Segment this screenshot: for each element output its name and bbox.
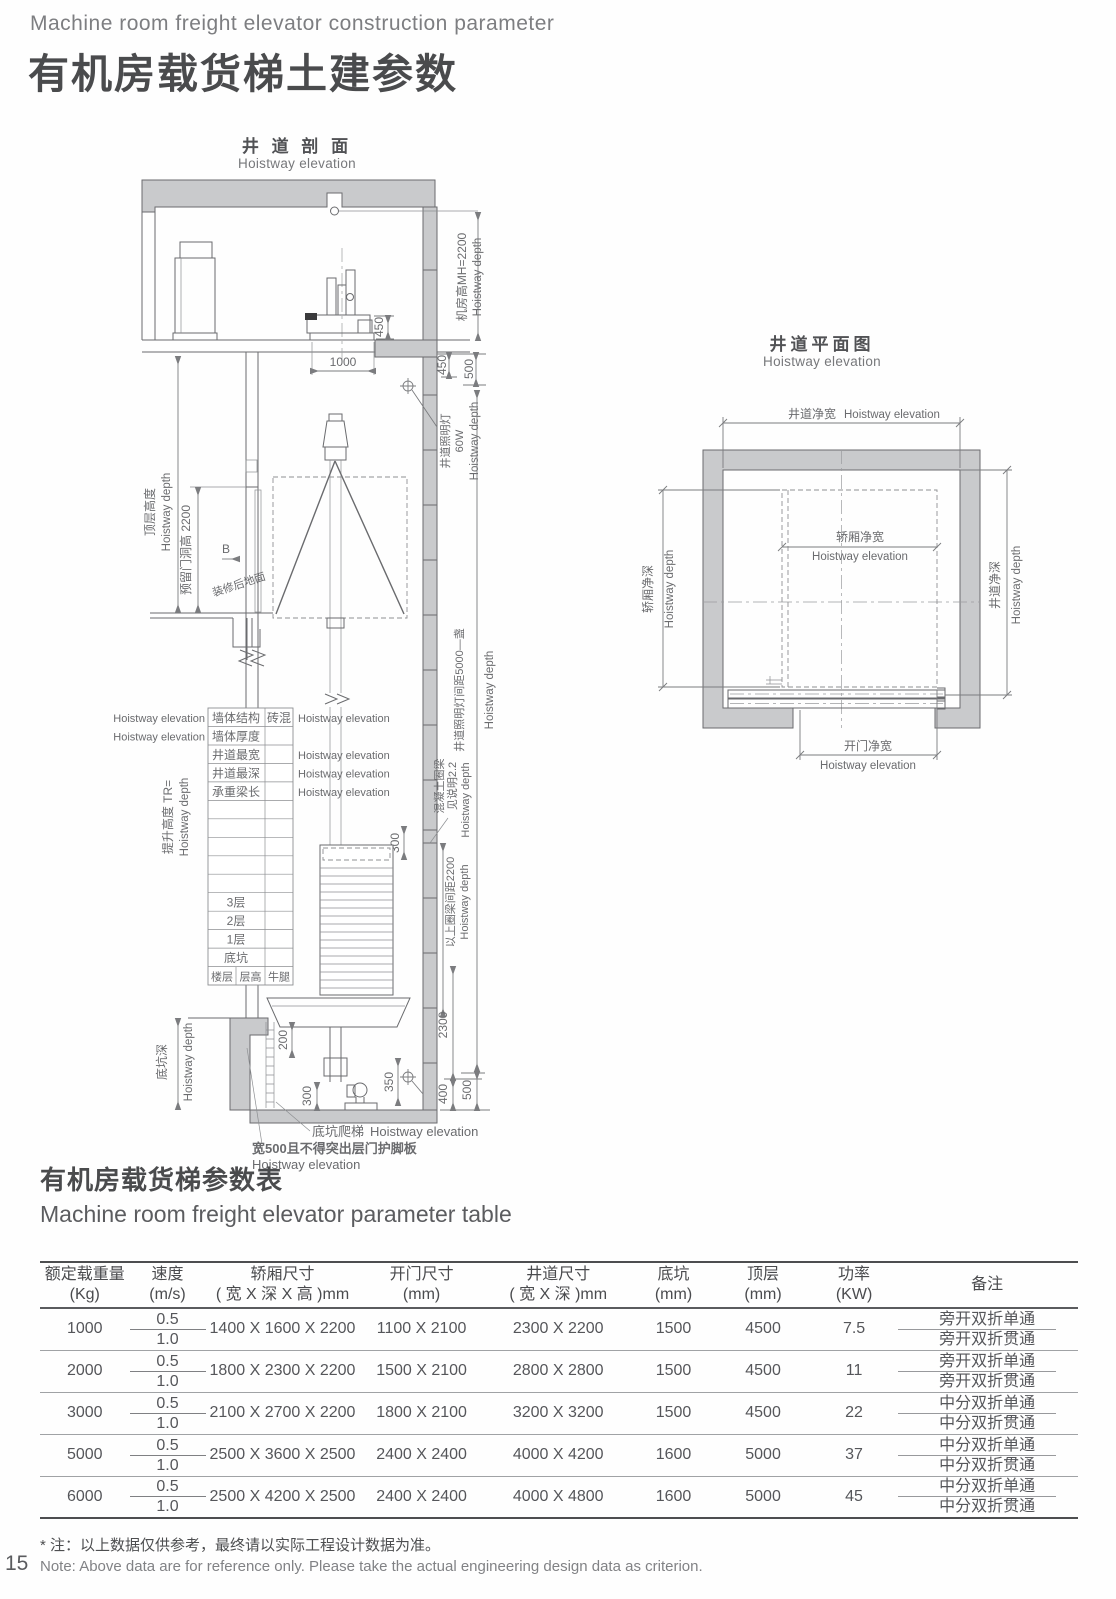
cell-car-size: 2500 X 4200 X 2500: [206, 1476, 360, 1518]
pit-ladder-label-zh: 底坑爬梯: [312, 1124, 364, 1139]
section-title-zh: 井 道 剖 面: [242, 136, 352, 156]
dim-450-machine: 450: [372, 317, 386, 337]
toe-guard-label-zh: 宽500且不得突出层门护脚板: [251, 1141, 418, 1156]
footnote-zh: * 注：以上数据仅供参考，最终请以实际工程设计数据为准。: [40, 1534, 1078, 1555]
spec-row-label: 底坑: [224, 950, 248, 965]
shaft-width-label-en: Hoistway elevation: [844, 409, 940, 421]
table-header-row: 额定载重量(Kg) 速度(m/s) 轿厢尺寸( 宽 X 深 X 高 )mm 开门…: [40, 1262, 1078, 1308]
cell-load: 6000: [40, 1476, 130, 1518]
cell-pit: 1500: [633, 1350, 715, 1392]
car-width-label-en: Hoistway elevation: [812, 551, 908, 563]
spec-row-label: 井道最深: [212, 766, 260, 780]
light-spacing-zh: 井道照明灯间距5000—盏: [452, 628, 466, 751]
pit-depth-en: Hoistway depth: [183, 1023, 195, 1102]
door-width-label-en: Hoistway elevation: [820, 760, 916, 772]
cell-door-size: 2400 X 2400: [359, 1434, 483, 1476]
spec-left-note: Hoistway elevation: [113, 713, 205, 725]
spec-row-label: 牛腿: [268, 970, 290, 984]
col-header-speed: 速度(m/s): [130, 1262, 206, 1308]
col-header-power: 功率(KW): [812, 1262, 897, 1308]
cell-door-size: 1500 X 2100: [359, 1350, 483, 1392]
dim-2300: 2300: [436, 1011, 450, 1038]
machine-room-left-wall: [142, 212, 155, 340]
cell-remark: 旁开双折单通旁开双折贯通: [896, 1308, 1078, 1350]
cell-power: 7.5: [812, 1308, 897, 1350]
dim-450-light: 450: [435, 355, 449, 375]
pit-floor: [250, 1110, 437, 1123]
col-header-pit: 底坑(mm): [633, 1262, 715, 1308]
hook-icon: [331, 207, 339, 215]
plan-title-en: Hoistway elevation: [763, 354, 881, 369]
pit-light-icon: [400, 1069, 423, 1094]
spec-row-label: 层高: [240, 970, 262, 984]
shaft-spec-table: 墙体结构 砖混 墙体厚度 井道最宽 井道最深 承重梁长 3层 2层 1层 底坑 …: [208, 708, 293, 985]
machine-room-height-label-zh: 机房高MH=2200: [454, 232, 469, 321]
spec-row-label: 楼层: [211, 970, 233, 984]
cell-overhead: 4500: [714, 1308, 811, 1350]
cell-load: 5000: [40, 1434, 130, 1476]
control-cabinet: [173, 242, 217, 340]
spec-row-label: 墙体结构: [212, 710, 260, 725]
cell-power: 22: [812, 1392, 897, 1434]
catalog-page: Machine room freight elevator constructi…: [0, 0, 1116, 1599]
machine-room-height-label-en: Hoistway depth: [472, 238, 484, 317]
cell-remark: 中分双折单通中分双折贯通: [896, 1476, 1078, 1518]
landing-floor: [150, 613, 273, 618]
cell-power: 11: [812, 1350, 897, 1392]
hoistway-section-drawing: 井 道 剖 面 Hoistway elevation: [113, 136, 496, 1172]
table-row: 2000 0.51.0 1800 X 2300 X 2200 1500 X 21…: [40, 1350, 1078, 1392]
ring-beam-en: Hoistway depth: [460, 762, 472, 837]
spec-row-value: 砖混: [267, 710, 291, 725]
dim-500-pit: 500: [460, 1080, 474, 1100]
plan-car-outline: [782, 490, 937, 687]
cell-remark: 中分双折单通中分双折贯通: [896, 1434, 1078, 1476]
cell-shaft-size: 2300 X 2200: [484, 1308, 633, 1350]
spec-right-value: Hoistway elevation: [298, 768, 390, 780]
lifting-height-en: Hoistway depth: [179, 778, 191, 857]
door-sill: [728, 688, 945, 709]
shaft-width-label-zh: 井道净宽: [788, 406, 836, 421]
pit-left-wall: [230, 1018, 268, 1110]
cell-power: 45: [812, 1476, 897, 1518]
spec-right-value: Hoistway elevation: [298, 713, 390, 725]
shaft-top-slab: [375, 340, 437, 357]
shaft-light-label-en: Hoistway depth: [469, 402, 481, 481]
cell-overhead: 4500: [714, 1350, 811, 1392]
spec-row-label: 1层: [227, 933, 246, 947]
cell-car-size: 2500 X 3600 X 2500: [206, 1434, 360, 1476]
cell-door-size: 1100 X 2100: [359, 1308, 483, 1350]
parameter-table: 额定载重量(Kg) 速度(m/s) 轿厢尺寸( 宽 X 深 X 高 )mm 开门…: [40, 1261, 1078, 1519]
cell-pit: 1600: [633, 1476, 715, 1518]
ring-spacing-en: Hoistway depth: [459, 864, 471, 939]
dim-200: 200: [276, 1030, 290, 1050]
shaft-depth-label-zh: 井道净深: [988, 561, 1002, 609]
construction-drawings: 井 道 剖 面 Hoistway elevation: [0, 0, 1116, 1180]
shaft-light-power: 60W: [454, 429, 466, 452]
cell-overhead: 5000: [714, 1434, 811, 1476]
buffer: [345, 1083, 377, 1110]
pit-ladder-label-en: Hoistway elevation: [370, 1124, 478, 1139]
ring-spacing-zh: 以上圈梁间距2200: [443, 857, 457, 947]
light-spacing-en: Hoistway depth: [484, 651, 496, 730]
cell-pit: 1500: [633, 1392, 715, 1434]
table-row: 3000 0.51.0 2100 X 2700 X 2200 1800 X 21…: [40, 1392, 1078, 1434]
cell-speed: 0.51.0: [130, 1434, 206, 1476]
parameter-section: 有机房载货梯参数表 Machine room freight elevator …: [40, 1160, 1078, 1575]
spec-row-label: 墙体厚度: [212, 729, 260, 744]
cell-door-size: 1800 X 2100: [359, 1392, 483, 1434]
table-row: 1000 0.51.0 1400 X 1600 X 2200 1100 X 21…: [40, 1308, 1078, 1350]
cell-power: 37: [812, 1434, 897, 1476]
cell-speed: 0.51.0: [130, 1308, 206, 1350]
spec-row-label: 井道最宽: [212, 747, 260, 762]
door-opening-height: 预留门洞高 2200: [178, 505, 193, 595]
traction-machine: [305, 248, 374, 362]
top-floor-height-zh: 顶层高度: [142, 488, 157, 536]
dim-400: 400: [436, 1084, 450, 1104]
car-width-label-zh: 轿厢净宽: [836, 529, 884, 544]
cell-door-size: 2400 X 2400: [359, 1476, 483, 1518]
col-header-door-size: 开门尺寸(mm): [359, 1262, 483, 1308]
top-floor-height-en: Hoistway depth: [161, 473, 173, 552]
col-header-load: 额定载重量(Kg): [40, 1262, 130, 1308]
lifting-height-zh: 提升高度 TR=: [160, 780, 175, 854]
cell-speed: 0.51.0: [130, 1392, 206, 1434]
section-title-en: Hoistway elevation: [238, 156, 356, 171]
page-number: 15: [5, 1552, 28, 1576]
ring-beam-zh: 混凝土圈梁: [432, 759, 446, 814]
col-header-remark: 备注: [896, 1262, 1078, 1308]
cell-remark: 旁开双折单通旁开双折贯通: [896, 1350, 1078, 1392]
plan-title-zh: 井道平面图: [770, 334, 875, 354]
cell-load: 2000: [40, 1350, 130, 1392]
cell-shaft-size: 3200 X 3200: [484, 1392, 633, 1434]
shaft-light-label-zh: 井道照明灯: [438, 414, 452, 469]
spec-row-label: 2层: [227, 914, 246, 928]
section-marker-b: B: [222, 542, 230, 556]
hoistway-plan-drawing: 井道平面图 Hoistway elevation 井道净宽 Hoistway e…: [640, 334, 1023, 772]
table-row: 6000 0.51.0 2500 X 4200 X 2500 2400 X 24…: [40, 1476, 1078, 1518]
cell-overhead: 4500: [714, 1392, 811, 1434]
dim-500-light: 500: [462, 359, 476, 379]
spec-right-value: Hoistway elevation: [298, 787, 390, 799]
dim-300-pit: 300: [300, 1086, 314, 1106]
cell-speed: 0.51.0: [130, 1476, 206, 1518]
spec-right-value: Hoistway elevation: [298, 750, 390, 762]
cell-load: 3000: [40, 1392, 130, 1434]
machine-room-top-wall: [142, 180, 435, 212]
cell-shaft-size: 4000 X 4800: [484, 1476, 633, 1518]
pit-depth-zh: 底坑深: [154, 1044, 169, 1080]
dim-1000: 1000: [330, 355, 357, 369]
shaft-right-wall: [423, 357, 437, 1110]
cell-load: 1000: [40, 1308, 130, 1350]
cell-pit: 1600: [633, 1434, 715, 1476]
col-header-shaft-size: 井道尺寸( 宽 X 深 )mm: [484, 1262, 633, 1308]
ring-beam-note: 见说明2.2: [445, 762, 459, 810]
spec-row-label: 承重梁长: [212, 784, 260, 799]
cell-shaft-size: 4000 X 4200: [484, 1434, 633, 1476]
machine-room-right-wall: [423, 207, 437, 340]
footnote-en: Note: Above data are for reference only.…: [40, 1558, 1078, 1575]
shaft-depth-label-en: Hoistway depth: [1011, 546, 1023, 625]
dim-350: 350: [382, 1072, 396, 1092]
cell-car-size: 2100 X 2700 X 2200: [206, 1392, 360, 1434]
cell-overhead: 5000: [714, 1476, 811, 1518]
cell-car-size: 1400 X 1600 X 2200: [206, 1308, 360, 1350]
cell-speed: 0.51.0: [130, 1350, 206, 1392]
table-title-en: Machine room freight elevator parameter …: [40, 1201, 1078, 1228]
car-depth-label-zh: 轿厢净深: [640, 565, 655, 613]
table-row: 5000 0.51.0 2500 X 3600 X 2500 2400 X 24…: [40, 1434, 1078, 1476]
cell-remark: 中分双折单通中分双折贯通: [896, 1392, 1078, 1434]
cell-car-size: 1800 X 2300 X 2200: [206, 1350, 360, 1392]
col-header-overhead: 顶层(mm): [714, 1262, 811, 1308]
col-header-car-size: 轿厢尺寸( 宽 X 深 X 高 )mm: [206, 1262, 360, 1308]
car-depth-label-en: Hoistway depth: [664, 550, 676, 629]
door-width-label-zh: 开门净宽: [844, 738, 892, 753]
table-title-zh: 有机房载货梯参数表: [40, 1160, 1078, 1197]
finished-floor-label: 装修后地面: [210, 569, 267, 599]
spec-row-label: 3层: [227, 896, 246, 910]
spec-left-note: Hoistway elevation: [113, 732, 205, 744]
cell-pit: 1500: [633, 1308, 715, 1350]
cell-shaft-size: 2800 X 2800: [484, 1350, 633, 1392]
